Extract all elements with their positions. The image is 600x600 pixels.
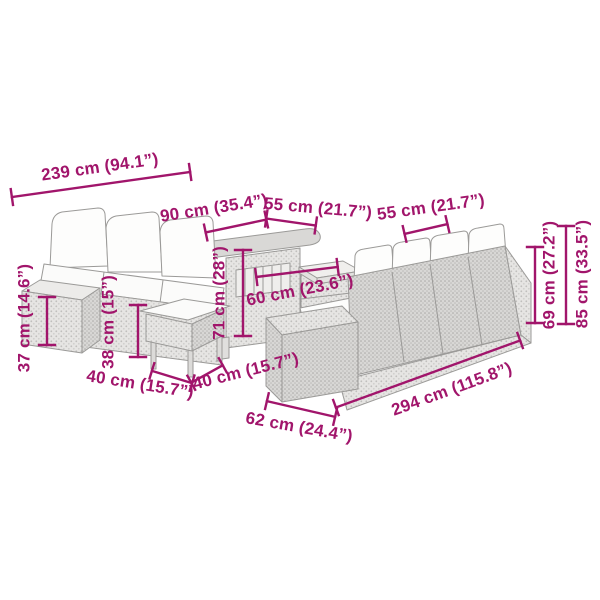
dim-label-table-height: 71 cm (28”) <box>209 246 228 340</box>
dim-label-stool-height: 38 cm (15”) <box>98 275 117 369</box>
dim-label-backrest-height: 69 cm (27.2”) <box>539 221 558 329</box>
left-side-table <box>22 280 100 353</box>
back-cushion <box>160 216 216 278</box>
diagram-canvas: 239 cm (94.1”) 90 cm (35.4”) 55 cm (21.7… <box>0 0 600 600</box>
dim-label-table-top-width: 90 cm (35.4”) <box>159 190 269 226</box>
dim-stool-width: 40 cm (15.7”) <box>85 363 195 402</box>
dim-right-sofa-depth: 62 cm (24.4”) <box>244 393 354 445</box>
dim-label-side-table-height: 37 cm (14.6”) <box>14 264 33 372</box>
stool-leg <box>188 348 193 377</box>
product-dimension-diagram: 239 cm (94.1”) 90 cm (35.4”) 55 cm (21.7… <box>0 0 600 600</box>
dim-table-top-depth: 55 cm (21.7”) <box>263 194 373 234</box>
dim-total-height: 85 cm (33.5”) <box>558 220 591 328</box>
dim-backrest-height: 69 cm (27.2”) <box>527 221 558 329</box>
dim-label-table-top-depth: 55 cm (21.7”) <box>263 194 373 222</box>
dim-label-stool-width: 40 cm (15.7”) <box>85 366 195 402</box>
dim-left-group-width: 239 cm (94.1”) <box>11 149 191 205</box>
dim-label-right-sofa-seat-depth: 55 cm (21.7”) <box>376 190 486 224</box>
dim-label-total-height: 85 cm (33.5”) <box>572 220 591 328</box>
back-cushion <box>50 208 108 268</box>
back-cushion <box>106 212 162 272</box>
